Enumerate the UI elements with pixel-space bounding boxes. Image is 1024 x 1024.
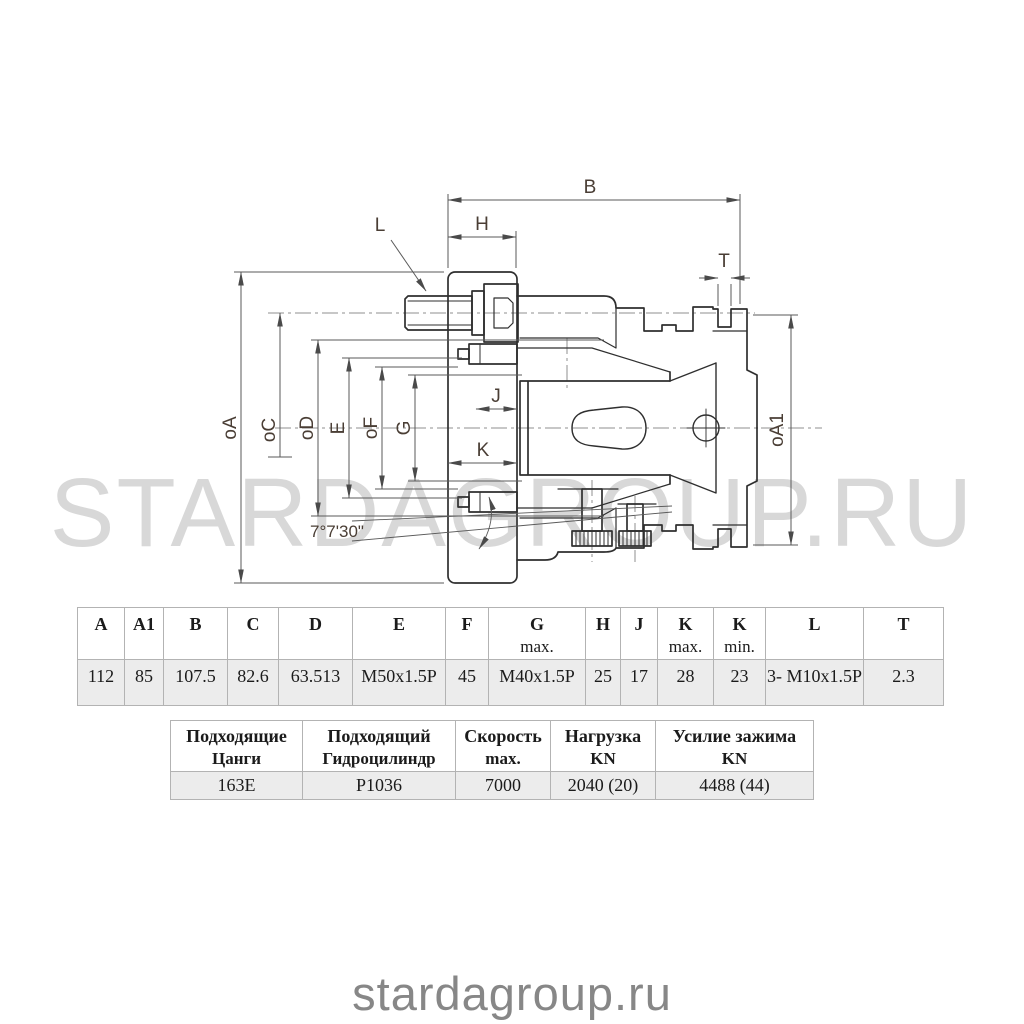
dim-value-h: 25 bbox=[586, 659, 621, 705]
dim-label-h: H bbox=[475, 214, 489, 235]
dim-value-d: 63.513 bbox=[279, 659, 353, 705]
dim-label-od: oD bbox=[297, 416, 318, 440]
dim-value-b: 107.5 bbox=[164, 659, 228, 705]
spec-header-collets: ПодходящиеЦанги bbox=[171, 721, 303, 772]
spec-table: ПодходящиеЦанги ПодходящийГидроцилиндр С… bbox=[170, 720, 814, 800]
dim-header-h: H bbox=[586, 608, 621, 660]
dim-label-angle: 7°7'30" bbox=[310, 522, 364, 541]
spec-value-row: 163E P1036 7000 2040 (20) 4488 (44) bbox=[171, 771, 814, 800]
dim-label-b: B bbox=[584, 177, 597, 198]
spec-header-speed: Скоростьmax. bbox=[456, 721, 551, 772]
dim-label-g: G bbox=[394, 421, 415, 436]
dim-header-j: J bbox=[621, 608, 658, 660]
dimensions-table: A A1 B C D E F Gmax. H J Kmax. Kmin. L T… bbox=[77, 607, 944, 706]
dim-header-l: L bbox=[766, 608, 864, 660]
dim-header-t: T bbox=[864, 608, 944, 660]
spec-value-collets: 163E bbox=[171, 771, 303, 800]
spec-header-row: ПодходящиеЦанги ПодходящийГидроцилиндр С… bbox=[171, 721, 814, 772]
spec-value-speed: 7000 bbox=[456, 771, 551, 800]
dim-value-k-max: 28 bbox=[658, 659, 714, 705]
spec-header-load: НагрузкаKN bbox=[551, 721, 656, 772]
dim-value-a: 112 bbox=[78, 659, 125, 705]
dim-value-f: 45 bbox=[446, 659, 489, 705]
dim-label-oc: oC bbox=[259, 418, 280, 442]
dim-header-k-max: Kmax. bbox=[658, 608, 714, 660]
dim-value-c: 82.6 bbox=[228, 659, 279, 705]
footer-site-text: stardagroup.ru bbox=[0, 966, 1024, 1021]
dim-label-k: K bbox=[477, 440, 490, 461]
dim-label-oa1: oA1 bbox=[767, 413, 788, 447]
spec-value-clamp-force: 4488 (44) bbox=[656, 771, 814, 800]
spec-value-cylinder: P1036 bbox=[303, 771, 456, 800]
dim-label-of: oF bbox=[361, 417, 382, 439]
dim-value-k-min: 23 bbox=[714, 659, 766, 705]
spec-value-load: 2040 (20) bbox=[551, 771, 656, 800]
dim-value-a1: 85 bbox=[125, 659, 164, 705]
spec-header-cylinder: ПодходящийГидроцилиндр bbox=[303, 721, 456, 772]
dim-header-b: B bbox=[164, 608, 228, 660]
dim-value-l: 3- M10x1.5P bbox=[766, 659, 864, 705]
page: STARDAGROUP.RU bbox=[0, 0, 1024, 1024]
spec-header-clamp-force: Усилие зажимаKN bbox=[656, 721, 814, 772]
dim-header-a1: A1 bbox=[125, 608, 164, 660]
dim-value-g: M40x1.5P bbox=[489, 659, 586, 705]
dim-header-c: C bbox=[228, 608, 279, 660]
dim-header-f: F bbox=[446, 608, 489, 660]
dim-header-g: Gmax. bbox=[489, 608, 586, 660]
dim-value-t: 2.3 bbox=[864, 659, 944, 705]
dim-label-j: J bbox=[491, 386, 501, 407]
dim-header-e: E bbox=[353, 608, 446, 660]
dim-label-oa: oA bbox=[220, 416, 241, 440]
dim-header-d: D bbox=[279, 608, 353, 660]
dim-value-e: M50x1.5P bbox=[353, 659, 446, 705]
dim-label-l: L bbox=[375, 215, 386, 236]
dim-label-t: T bbox=[718, 251, 730, 272]
dim-header-a: A bbox=[78, 608, 125, 660]
dim-value-row: 112 85 107.5 82.6 63.513 M50x1.5P 45 M40… bbox=[78, 659, 944, 705]
dim-label-e: E bbox=[328, 422, 349, 435]
dim-value-j: 17 bbox=[621, 659, 658, 705]
dim-header-k-min: Kmin. bbox=[714, 608, 766, 660]
technical-drawing: STARDAGROUP.RU bbox=[0, 0, 1024, 620]
dim-header-row: A A1 B C D E F Gmax. H J Kmax. Kmin. L T bbox=[78, 608, 944, 660]
